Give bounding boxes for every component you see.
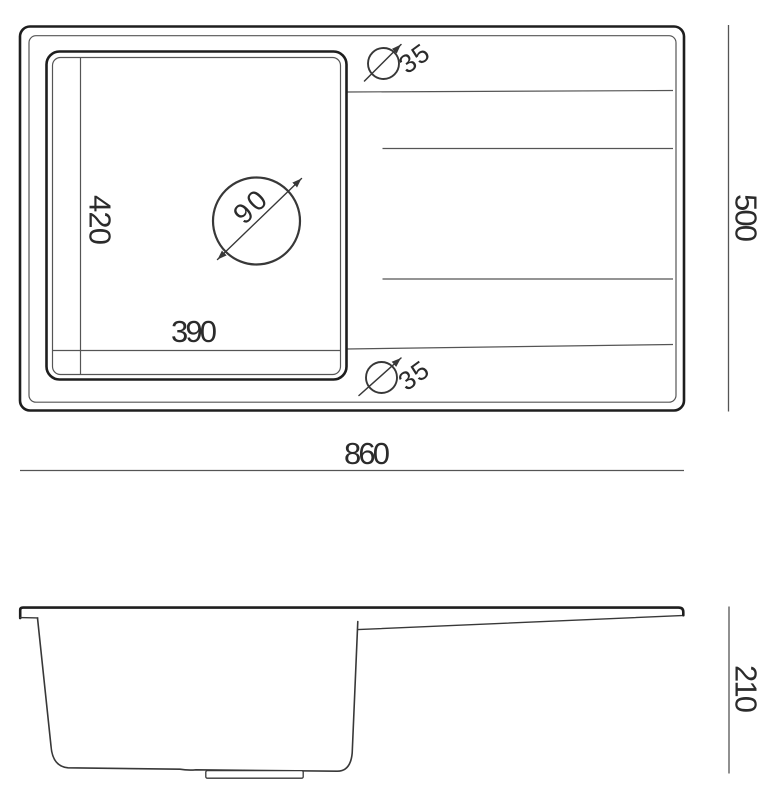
bowl-profile: [38, 618, 358, 771]
dim-overall-depth-label: 500: [729, 194, 764, 242]
dim-overall-width-label: 860: [344, 436, 390, 471]
dim-bowl-depth-label: 420: [83, 195, 118, 245]
dim-bowl-width-label: 390: [171, 314, 217, 349]
drainboard-slope-line: [358, 616, 682, 630]
sink-technical-drawing: 90 35 35 420 390 500 860: [0, 0, 781, 800]
sink-technical-drawing-page: 90 35 35 420 390 500 860: [0, 0, 781, 800]
drain-outlet: [206, 771, 303, 779]
side-view: 210: [20, 607, 763, 779]
top-view: 90 35 35 420 390 500 860: [20, 25, 764, 471]
dim-height-label: 210: [729, 665, 764, 713]
countertop-profile: [20, 608, 683, 618]
